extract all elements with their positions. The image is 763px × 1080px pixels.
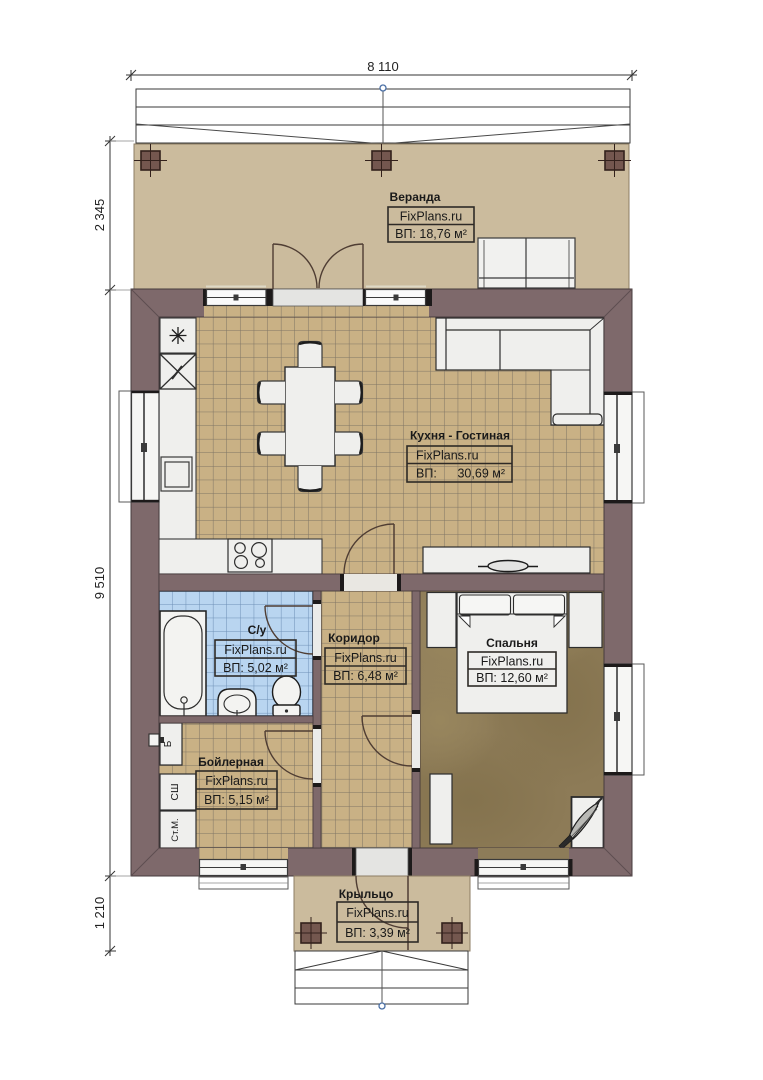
svg-text:Б: Б xyxy=(163,740,174,747)
svg-text:ВП: 12,60 м²: ВП: 12,60 м² xyxy=(476,671,548,685)
svg-text:8 110: 8 110 xyxy=(367,59,399,74)
svg-text:1 210: 1 210 xyxy=(92,897,107,930)
svg-text:ВП: 3,39 м²: ВП: 3,39 м² xyxy=(345,926,410,940)
svg-text:ВП: 6,48 м²: ВП: 6,48 м² xyxy=(333,669,398,683)
svg-text:FixPlans.ru: FixPlans.ru xyxy=(334,651,397,665)
svg-text:Коридор: Коридор xyxy=(328,631,380,645)
svg-text:FixPlans.ru: FixPlans.ru xyxy=(205,774,268,788)
svg-text:СШ: СШ xyxy=(169,783,181,800)
svg-text:FixPlans.ru: FixPlans.ru xyxy=(416,449,479,463)
svg-text:ВП: 5,15 м²: ВП: 5,15 м² xyxy=(204,793,269,807)
svg-text:Веранда: Веранда xyxy=(390,190,441,204)
svg-text:Бойлерная: Бойлерная xyxy=(198,755,264,769)
svg-text:FixPlans.ru: FixPlans.ru xyxy=(224,643,287,657)
svg-text:FixPlans.ru: FixPlans.ru xyxy=(481,655,544,669)
svg-text:FixPlans.ru: FixPlans.ru xyxy=(400,210,463,224)
svg-text:ВП: 18,76 м²: ВП: 18,76 м² xyxy=(395,227,467,241)
svg-text:Крыльцо: Крыльцо xyxy=(339,887,394,901)
svg-text:Спальня: Спальня xyxy=(486,636,538,650)
svg-text:ВП:: ВП: xyxy=(416,467,437,481)
svg-text:30,69 м²: 30,69 м² xyxy=(457,467,505,481)
svg-text:Ст.М.: Ст.М. xyxy=(170,818,181,841)
svg-text:Кухня - Гостиная: Кухня - Гостиная xyxy=(410,429,510,443)
svg-text:ВП: 5,02 м²: ВП: 5,02 м² xyxy=(223,661,288,675)
svg-text:2 345: 2 345 xyxy=(92,199,107,232)
svg-text:9 510: 9 510 xyxy=(92,567,107,600)
svg-text:С/у: С/у xyxy=(248,623,267,637)
svg-text:FixPlans.ru: FixPlans.ru xyxy=(346,906,409,920)
